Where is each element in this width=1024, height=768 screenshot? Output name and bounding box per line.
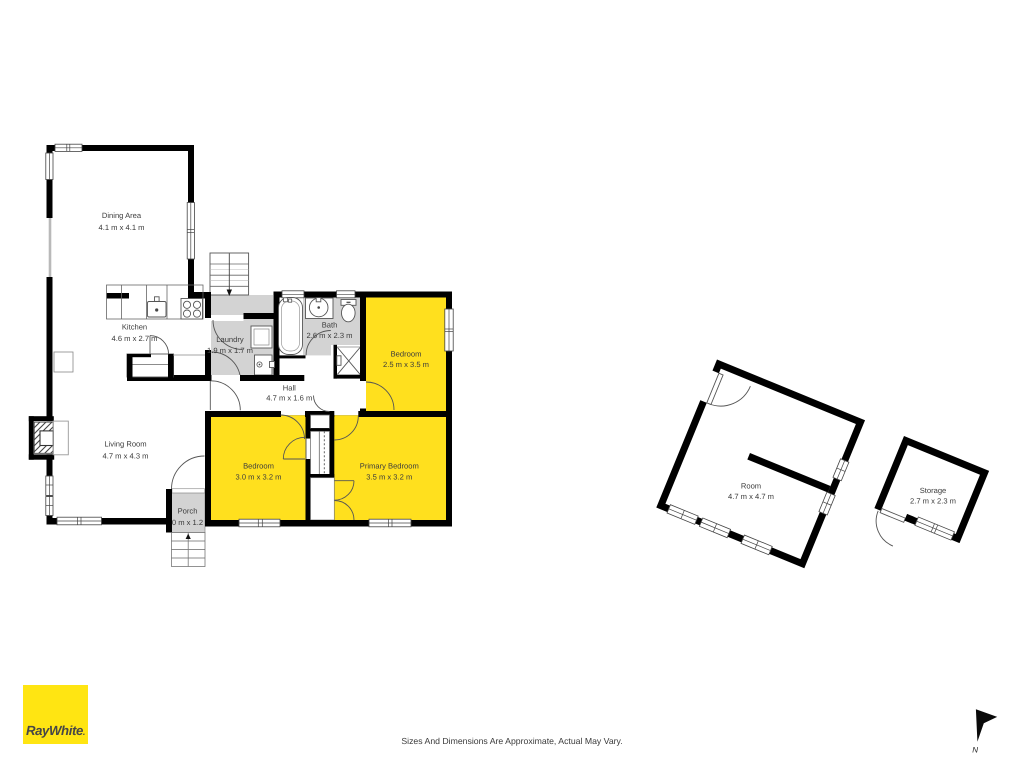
svg-text:Laundry: Laundry [216, 335, 244, 344]
svg-text:4.1 m x 4.1 m: 4.1 m x 4.1 m [98, 223, 144, 232]
svg-text:Hall: Hall [283, 384, 296, 393]
svg-text:0 m x 1.2: 0 m x 1.2 [172, 518, 203, 527]
svg-text:Kitchen: Kitchen [122, 323, 147, 332]
svg-text:Porch: Porch [178, 507, 198, 516]
svg-text:2.6 m x 2.3 m: 2.6 m x 2.3 m [306, 331, 352, 340]
svg-text:3.0 m x 3.2 m: 3.0 m x 3.2 m [235, 473, 281, 482]
svg-text:RayWhite.: RayWhite. [26, 723, 85, 738]
svg-text:Primary Bedroom: Primary Bedroom [360, 462, 419, 471]
svg-text:4.6 m x 2.7 m: 4.6 m x 2.7 m [111, 334, 157, 343]
svg-text:Dining Area: Dining Area [102, 211, 142, 220]
svg-text:4.7 m x 4.7 m: 4.7 m x 4.7 m [728, 492, 774, 501]
svg-text:Bedroom: Bedroom [391, 350, 422, 359]
svg-text:Bedroom: Bedroom [243, 462, 274, 471]
svg-text:Sizes And Dimensions Are Appro: Sizes And Dimensions Are Approximate, Ac… [401, 736, 622, 746]
svg-text:N: N [972, 746, 978, 755]
svg-text:Bath: Bath [322, 321, 338, 330]
svg-text:Room: Room [741, 482, 761, 491]
svg-text:2.5 m x 3.5 m: 2.5 m x 3.5 m [383, 360, 429, 369]
svg-text:Living Room: Living Room [104, 440, 146, 449]
svg-text:4.7 m x 4.3 m: 4.7 m x 4.3 m [102, 452, 148, 461]
svg-text:Storage: Storage [920, 486, 947, 495]
svg-text:1.9 m x 1.7 m: 1.9 m x 1.7 m [207, 346, 253, 355]
svg-text:2.7 m x 2.3 m: 2.7 m x 2.3 m [910, 497, 956, 506]
svg-text:4.7 m x 1.6 m: 4.7 m x 1.6 m [266, 394, 312, 403]
svg-text:3.5 m x 3.2 m: 3.5 m x 3.2 m [366, 473, 412, 482]
